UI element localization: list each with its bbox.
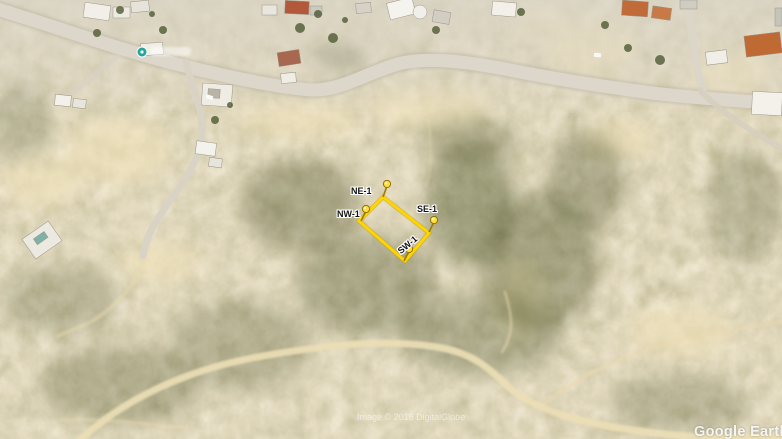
marker-label-nw1: NW-1	[337, 209, 360, 219]
imagery-credit-watermark: Image © 2016 DigitalGlobe	[357, 412, 465, 422]
google-earth-logo: Google Earth	[694, 424, 782, 439]
poi-marker-icon[interactable]	[137, 47, 147, 57]
satellite-imagery-layer	[0, 0, 782, 439]
satellite-map-canvas[interactable]: NE-1 NW-1 SE-1 SW-1 Image © 2016 Digital…	[0, 0, 782, 439]
car	[712, 54, 718, 57]
marker-label-ne1: NE-1	[351, 186, 372, 196]
marker-label-se1: SE-1	[417, 204, 437, 214]
car	[594, 53, 601, 58]
poi-label-smudge	[150, 47, 191, 56]
